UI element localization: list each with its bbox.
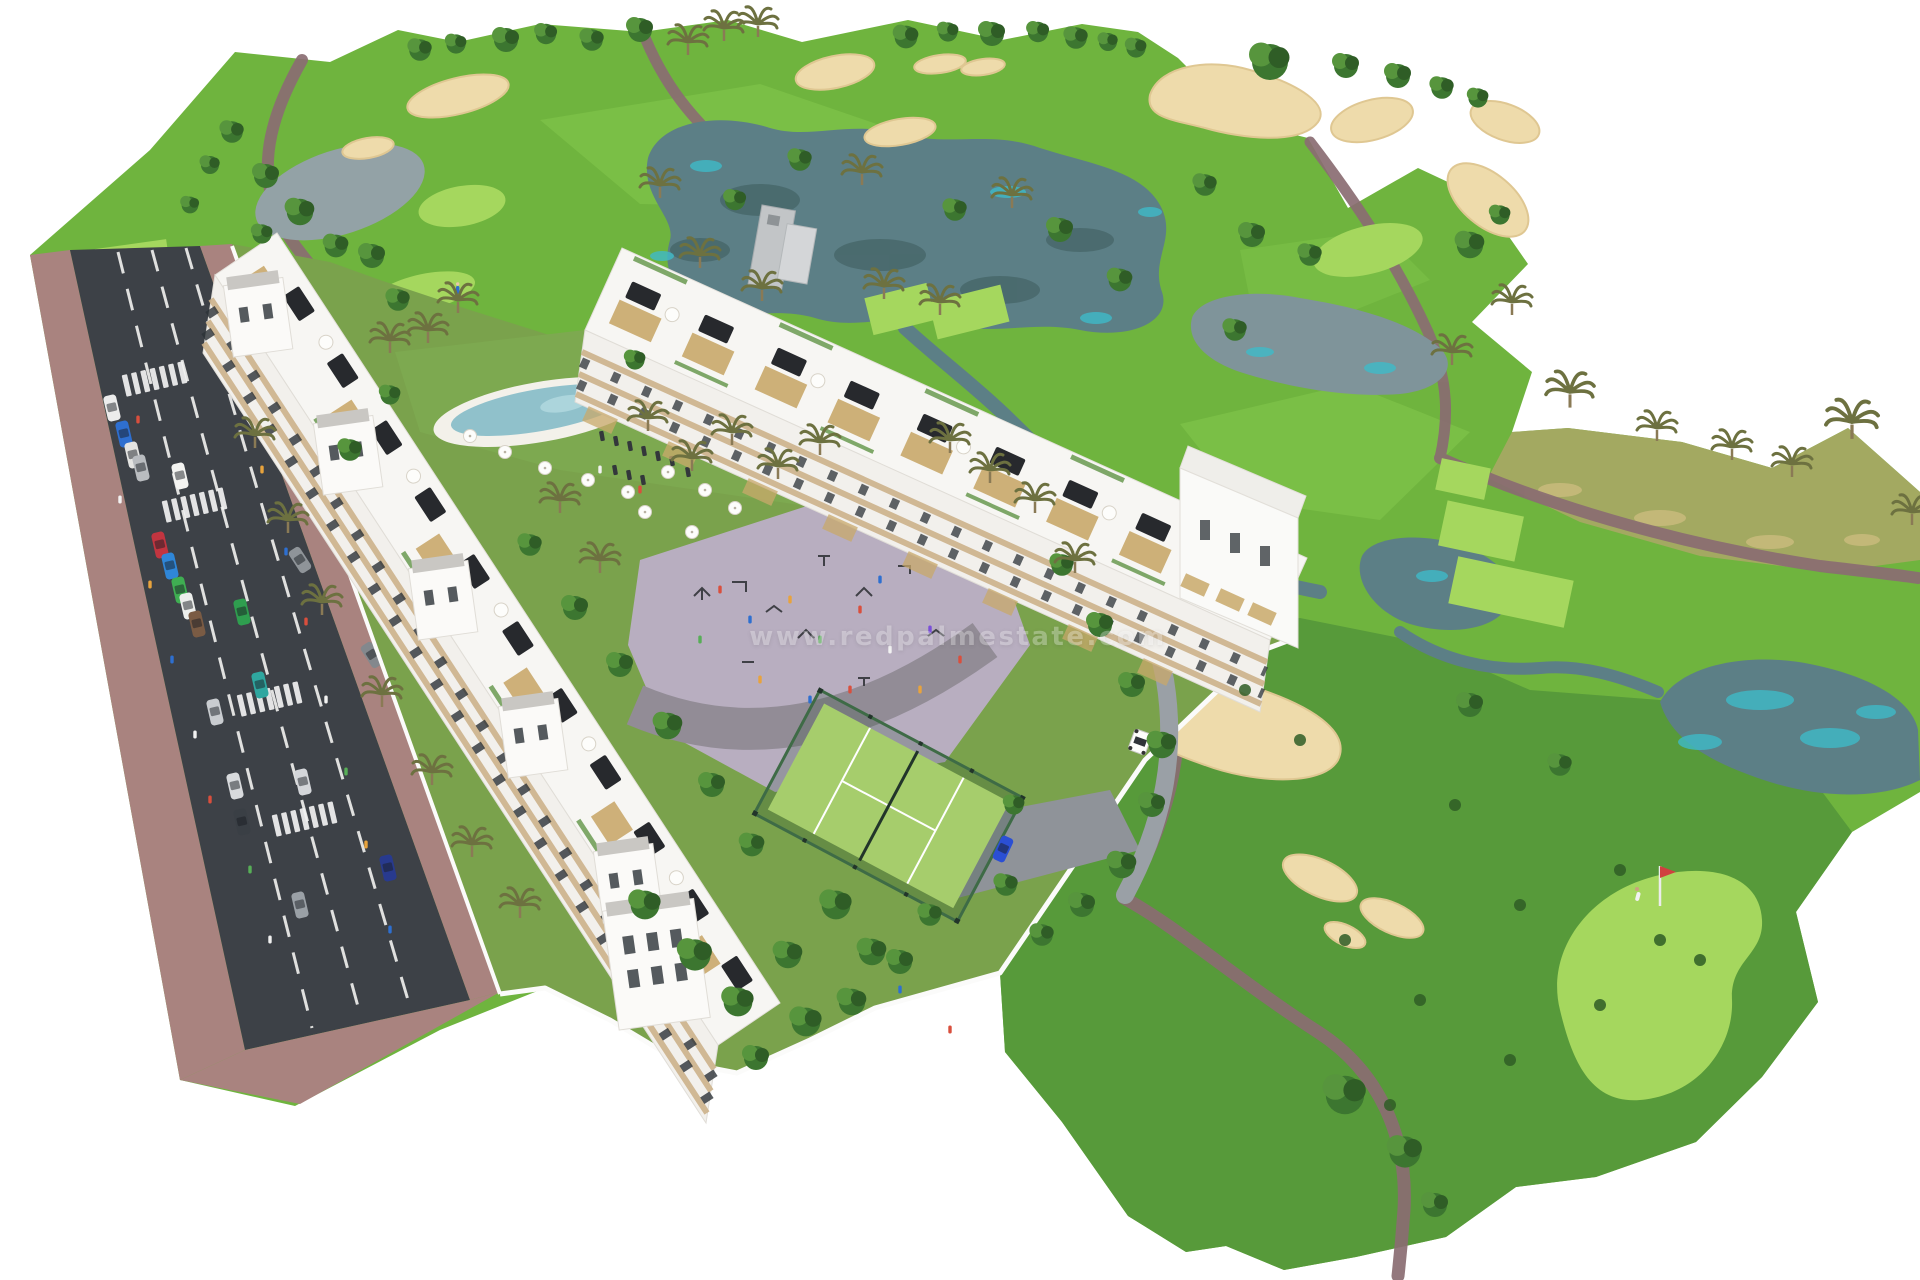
umbrella-icon [499,446,512,459]
pedestrian [304,618,307,626]
umbrella-icon [699,484,712,497]
pedestrian [788,596,791,604]
pedestrian [284,548,287,556]
umbrella-icon [686,526,699,539]
pedestrian [878,576,881,584]
pedestrian [718,586,721,594]
pedestrian [698,636,701,644]
aerial-render: www.redpalmestate.com [0,0,1920,1280]
lake-cyan-shallows [1416,570,1448,582]
pedestrian [848,686,851,694]
pedestrian [268,936,271,944]
palm-tree [1546,371,1594,407]
tree [1384,63,1411,88]
pedestrian [208,796,211,804]
tree [1429,76,1453,99]
scrub-sand-speckle [1746,535,1794,549]
palm-tree [1826,400,1878,439]
scrub-sand-speckle [1844,534,1880,546]
umbrella-icon [639,506,652,519]
pedestrian [598,466,601,474]
pedestrian [898,986,901,994]
pedestrian [170,656,173,664]
umbrella-icon [464,430,477,443]
pedestrian [344,768,347,776]
pedestrian [858,606,861,614]
pedestrian [918,686,921,694]
lake-cyan-shallows [1364,362,1396,374]
pedestrian [364,841,367,849]
umbrella-icon [729,502,742,515]
pedestrian [324,696,327,704]
umbrella-icon [582,474,595,487]
tree [1332,53,1359,78]
pedestrian [388,926,391,934]
bunker [1326,90,1417,150]
umbrella-icon [662,466,675,479]
pedestrian [193,731,196,739]
pedestrian [948,1026,951,1034]
pedestrian [260,466,263,474]
pedestrian [638,486,641,494]
umbrella-icon [539,462,552,475]
pedestrian [958,656,961,664]
pedestrian [148,581,151,589]
palm-tree [1637,411,1677,441]
pedestrian [808,696,811,704]
pedestrian [118,496,121,504]
pedestrian [758,676,761,684]
umbrella-icon [622,486,635,499]
pedestrian [248,866,251,874]
pedestrian [136,416,139,424]
lake-cyan-shallows [1246,347,1274,357]
watermark: www.redpalmestate.com [749,622,1166,652]
